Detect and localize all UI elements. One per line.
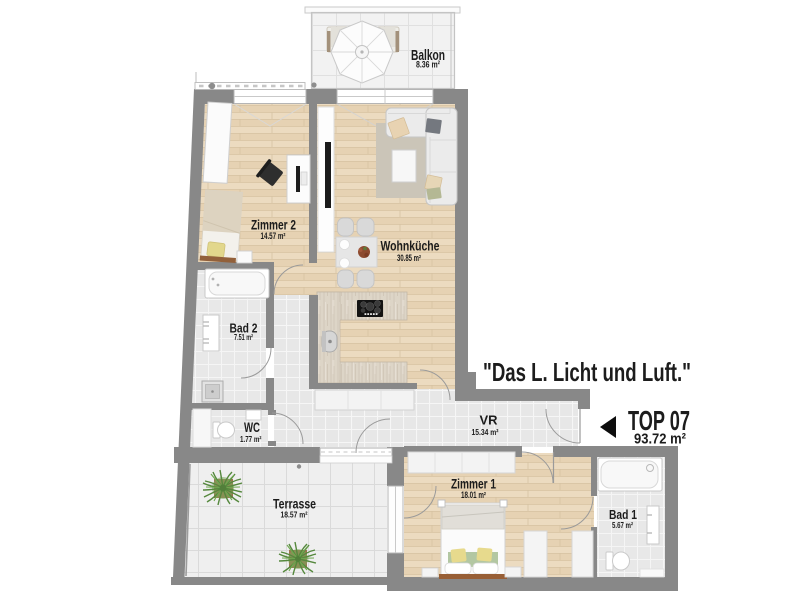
svg-text:8.36 m²: 8.36 m² [416,60,440,71]
svg-text:15.34 m²: 15.34 m² [472,427,499,437]
svg-text:93.72 m²: 93.72 m² [634,431,686,448]
svg-text:WC: WC [244,420,260,435]
svg-text:7.51 m²: 7.51 m² [234,333,253,342]
svg-text:18.57 m²: 18.57 m² [281,510,308,520]
svg-text:30.85 m²: 30.85 m² [397,253,421,263]
svg-text:1.77 m²: 1.77 m² [240,435,262,444]
svg-text:5.67 m²: 5.67 m² [612,521,633,530]
svg-text:14.57 m²: 14.57 m² [261,231,286,241]
svg-text:"Das L. Licht und Luft.": "Das L. Licht und Luft." [483,357,691,387]
svg-text:Wohnküche: Wohnküche [381,239,440,254]
svg-text:VR: VR [480,413,499,428]
svg-text:Bad 1: Bad 1 [609,508,637,522]
svg-text:18.01 m²: 18.01 m² [461,490,486,500]
